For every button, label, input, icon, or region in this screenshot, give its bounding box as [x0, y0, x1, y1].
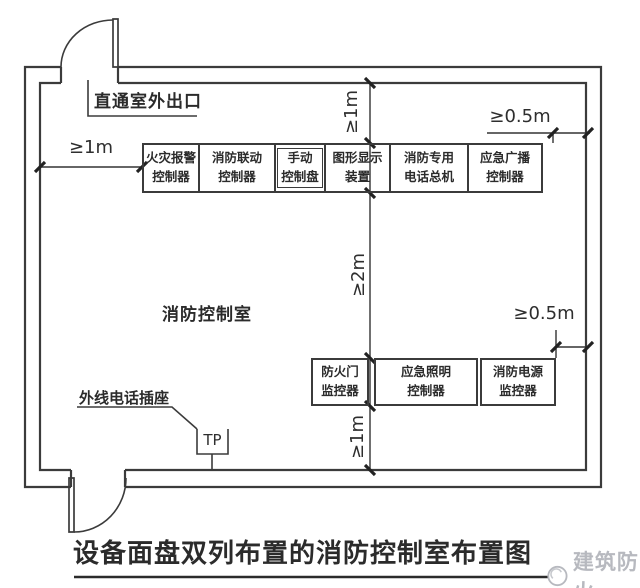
- panel-label: 消防专用: [404, 149, 454, 168]
- fire-control-room-diagram: 火灾报警控制器 消防联动控制器 手动控制盘 图形显示装置 消防专用电话总机 应急…: [0, 0, 640, 588]
- phone-label-leader: [77, 407, 197, 429]
- panel-fire-telephone-exchange: 消防专用电话总机: [389, 143, 469, 193]
- top-door-swing-arc: [61, 20, 113, 67]
- panel-label: 消防联动: [212, 149, 262, 168]
- watermark-text: 建筑防火: [573, 546, 640, 588]
- panel-label: 控制器: [401, 382, 451, 401]
- panel-label: 图形显示: [332, 149, 382, 168]
- dimension-lines: [40, 83, 590, 470]
- panel-label: 装置: [332, 168, 382, 187]
- dim-top-right-clearance: ≥0.5m: [484, 106, 556, 127]
- dim-bottom-right-clearance: ≥0.5m: [506, 303, 582, 324]
- panel-label: 电话总机: [404, 168, 454, 187]
- top-panel-row: 火灾报警控制器 消防联动控制器 手动控制盘 图形显示装置 消防专用电话总机 应急…: [142, 143, 543, 193]
- panel-label: 控制器: [212, 168, 262, 187]
- diagram-title: 设备面盘双列布置的消防控制室布置图: [73, 533, 532, 570]
- panel-label: 控制盘: [281, 168, 319, 187]
- panel-fire-linkage-controller: 消防联动控制器: [198, 143, 276, 193]
- panel-fire-door-monitor: 防火门监控器: [311, 358, 369, 406]
- panel-graphic-display-device: 图形显示装置: [324, 143, 391, 193]
- panel-label: 控制器: [146, 168, 196, 187]
- panel-label: 消防电源: [493, 363, 543, 382]
- panel-label: 监控器: [321, 382, 359, 401]
- tp-socket-symbol: TP: [197, 431, 228, 449]
- room-label: 消防控制室: [162, 300, 252, 325]
- panel-label: 应急广播: [480, 149, 530, 168]
- panel-label: 监控器: [493, 382, 543, 401]
- panel-label: 防火门: [321, 363, 359, 382]
- panel-label: 控制器: [480, 168, 530, 187]
- panel-label: 应急照明: [401, 363, 451, 382]
- panel-label: 火灾报警: [146, 149, 196, 168]
- dim-top-clearance: ≥1m: [340, 82, 362, 142]
- top-door-leaf: [113, 19, 118, 67]
- dim-bottom-clearance: ≥1m: [346, 407, 368, 467]
- panel-fire-alarm-controller: 火灾报警控制器: [142, 143, 200, 193]
- panel-emergency-broadcast-controller: 应急广播控制器: [467, 143, 543, 193]
- bottom-door-swing-arc: [74, 478, 126, 532]
- bottom-door-symbol: [69, 478, 126, 532]
- top-door-symbol: [61, 19, 118, 67]
- exit-label: 直通室外出口: [94, 87, 202, 112]
- dim-middle-clearance: ≥2m: [347, 245, 369, 305]
- watermark-logo: 建筑防火: [546, 546, 640, 588]
- panel-label: 手动: [281, 149, 319, 168]
- swirl-circle-icon: [546, 561, 569, 588]
- panel-manual-control-panel: 手动控制盘: [274, 143, 326, 193]
- dim-left-clearance: ≥1m: [62, 137, 120, 158]
- phone-socket-label: 外线电话插座: [79, 387, 169, 408]
- panel-emergency-lighting-controller: 应急照明控制器: [374, 358, 478, 406]
- panel-fire-power-monitor: 消防电源监控器: [480, 358, 556, 406]
- room-walls: [25, 67, 601, 487]
